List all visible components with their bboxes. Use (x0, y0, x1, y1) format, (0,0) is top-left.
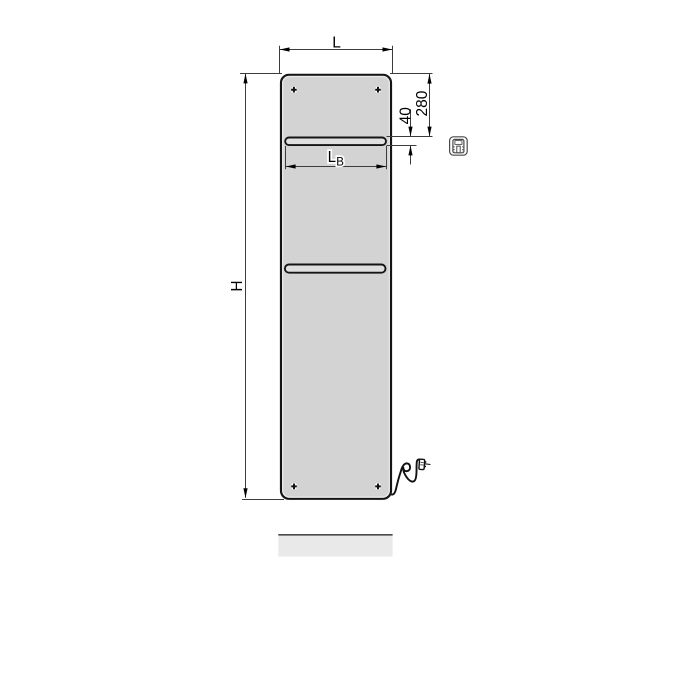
svg-text:H: H (229, 280, 246, 291)
svg-text:280: 280 (414, 90, 431, 116)
svg-text:40: 40 (398, 107, 415, 125)
svg-text:L: L (332, 35, 341, 52)
